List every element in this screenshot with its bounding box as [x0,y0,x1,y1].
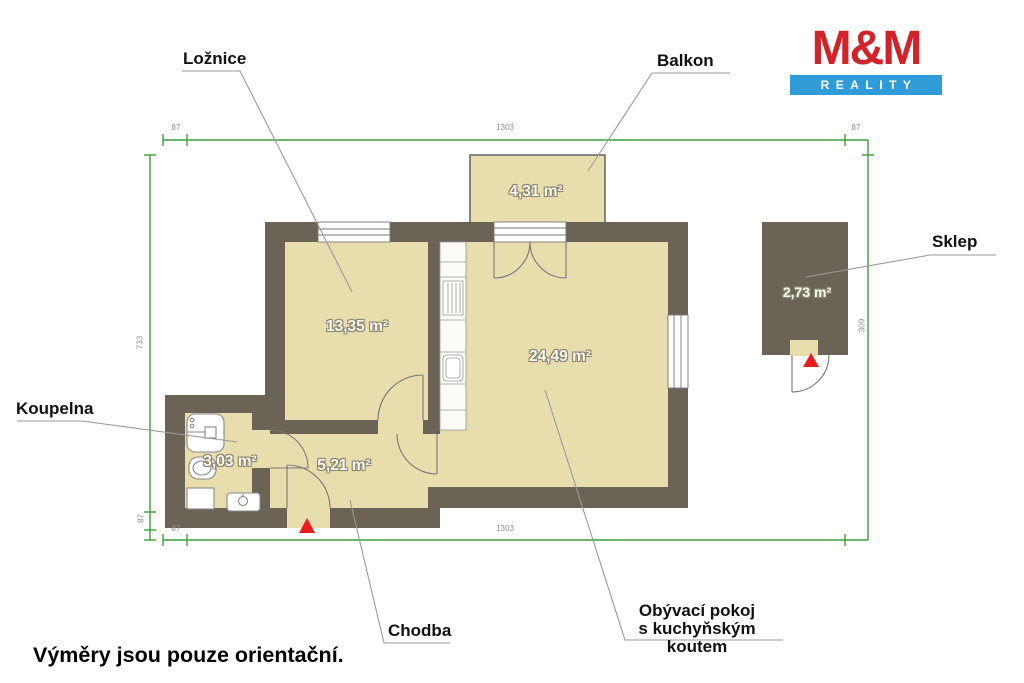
label-sklep: Sklep [932,232,977,252]
dim-bottom-left: 87 [164,524,188,533]
dim-left-step: 87 [137,507,146,531]
label-loznice: Ložnice [183,49,246,69]
area-obyvaci: 24,49 m² [529,348,591,366]
dim-top-total: 1303 [475,123,535,132]
dim-left-total: 733 [136,331,145,355]
floor-plan-canvas: Ložnice Balkon Koupelna Sklep Chodba Obý… [0,0,1024,683]
floor-plan-drawing [0,0,1024,683]
label-obyvaci-pokoj: Obývací pokoj s kuchyňským koutem [612,602,782,656]
dim-bottom-total: 1303 [475,524,535,533]
footer-disclaimer: Výměry jsou pouze orientační. [33,643,344,668]
label-balkon: Balkon [657,51,714,71]
label-obyvaci-line2: s kuchyňským koutem [612,620,782,656]
dim-right-total: 309 [858,314,867,338]
label-chodba: Chodba [388,621,451,641]
area-loznice: 13,35 m² [326,318,388,336]
area-chodba: 5,21 m² [317,457,370,475]
label-koupelna: Koupelna [16,399,93,419]
dim-top-right: 87 [844,123,868,132]
area-balkon: 4,31 m² [509,183,562,201]
mm-reality-logo: M&M REALITY [790,24,942,95]
logo-reality-text: REALITY [790,75,942,95]
dim-top-left: 87 [164,123,188,132]
label-obyvaci-line1: Obývací pokoj [612,602,782,620]
area-koupelna: 3,03 m² [203,453,256,471]
area-sklep: 2,73 m² [783,284,831,300]
logo-mm-text: M&M [790,24,942,74]
kitchen-counter [440,242,466,430]
